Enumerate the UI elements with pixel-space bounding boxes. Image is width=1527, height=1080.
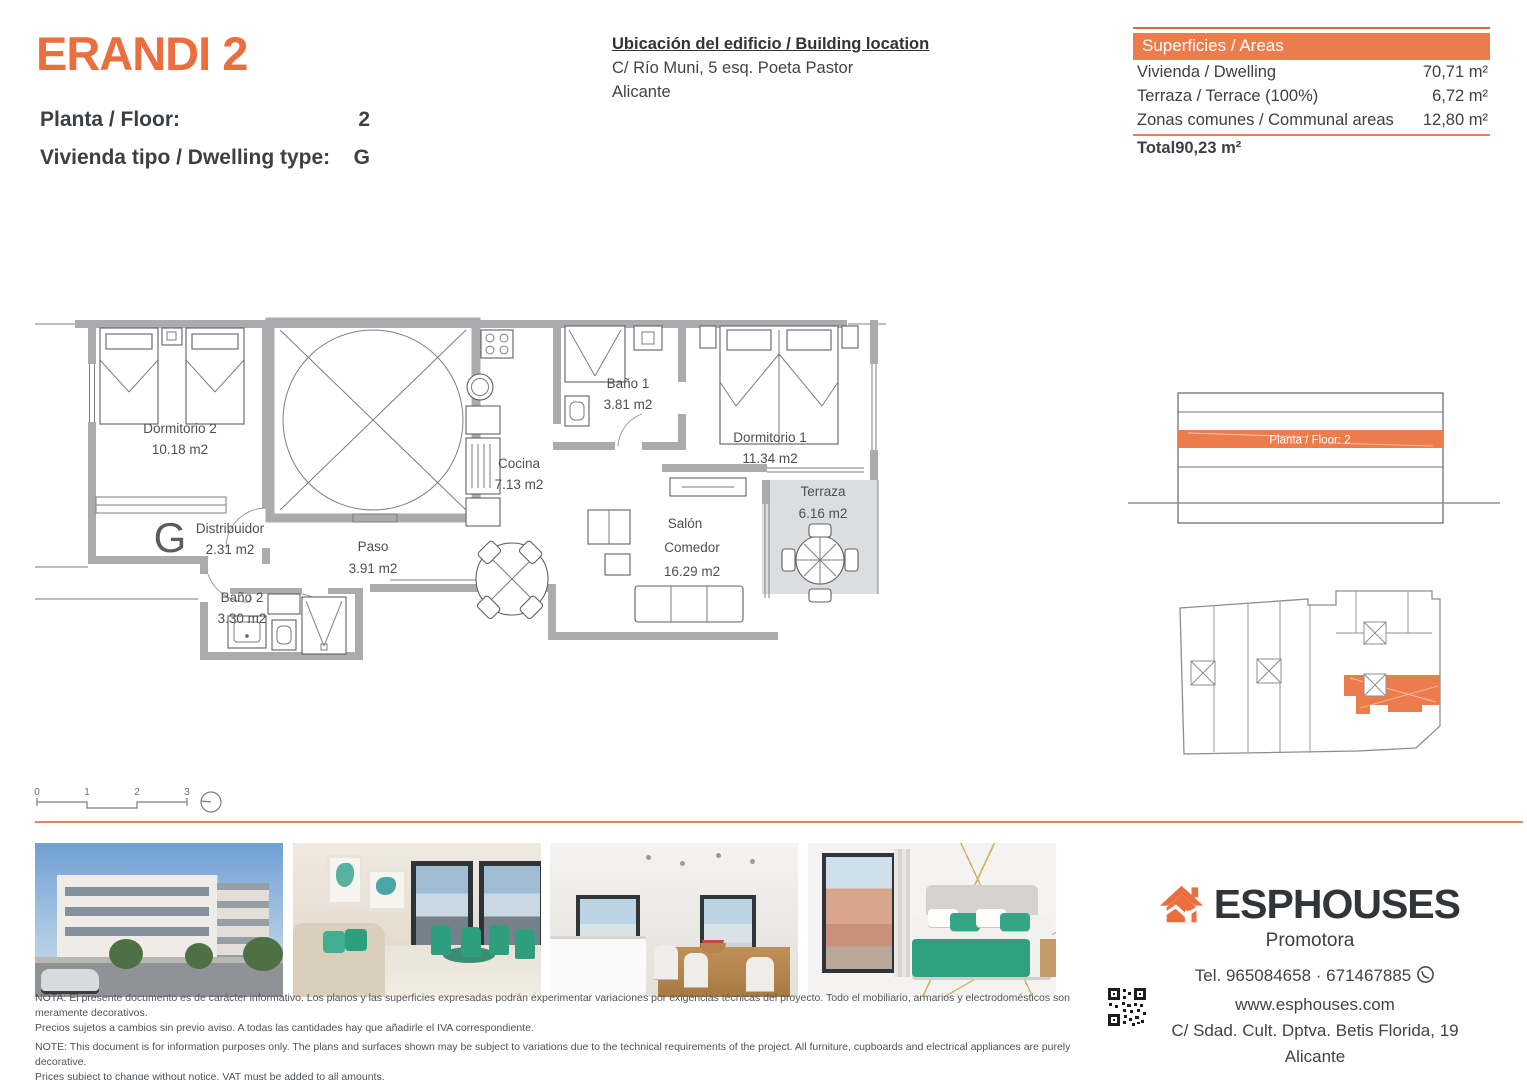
room-area: 3.81 m2 — [604, 397, 653, 412]
total-label: Total — [1137, 139, 1175, 158]
dwelling-type-label: Vivienda tipo / Dwelling type: — [40, 146, 354, 170]
building-location: Ubicación del edificio / Building locati… — [612, 32, 929, 104]
room-area: 11.34 m2 — [742, 451, 797, 466]
room-label: Distribuidor — [196, 521, 265, 536]
table-row: Zonas comunes / Communal areas 12,80 m² — [1133, 108, 1490, 132]
dwelling-type-value: G — [354, 146, 370, 170]
room-area: 16.29 m2 — [664, 564, 720, 579]
room-label: Paso — [358, 539, 389, 554]
photo-kitchen-dining — [550, 843, 798, 997]
contact-city: Alicante — [1120, 1044, 1510, 1070]
scale-tick: 0 — [34, 787, 40, 798]
whatsapp-icon — [1416, 965, 1435, 992]
room-label: Cocina — [498, 456, 541, 471]
room-area: 6.16 m2 — [799, 506, 848, 521]
document-page: ERANDI 2 Planta / Floor: 2 Vivienda tipo… — [0, 0, 1527, 1080]
room-area: 3.91 m2 — [349, 561, 398, 576]
building-location-city: Alicante — [612, 80, 929, 104]
scale-tick: 1 — [84, 787, 90, 798]
areas-table: Superficies / Areas Vivienda / Dwelling … — [1133, 27, 1490, 158]
total-value: 90,23 m² — [1175, 139, 1241, 158]
room-label: Baño 1 — [607, 376, 650, 391]
table-row: Terraza / Terrace (100%) 6,72 m² — [1133, 84, 1490, 108]
note-line: NOTA: El presente documento es de caráct… — [35, 991, 1110, 1021]
contact-address: C/ Sdad. Cult. Dptva. Betis Florida, 19 — [1120, 1018, 1510, 1044]
floor-row: Planta / Floor: 2 — [40, 108, 370, 132]
building-elevation-diagram: Planta / Floor: 2 — [1128, 385, 1500, 545]
room-label: Dormitorio 1 — [733, 430, 807, 445]
note-line: NOTE: This document is for information p… — [35, 1040, 1110, 1070]
photo-living-room — [293, 843, 541, 997]
floor-plan-drawing: Dormitorio 2 10.18 m2 Distribuidor 2.31 … — [30, 302, 890, 682]
row-label: Zonas comunes / Communal areas — [1137, 111, 1423, 130]
disclaimer-notes: NOTA: El presente documento es de caráct… — [35, 991, 1110, 1080]
row-value: 6,72 m² — [1432, 87, 1488, 106]
room-label: Dormitorio 2 — [143, 421, 217, 436]
brand-name: ESPHOUSES — [1214, 881, 1460, 928]
building-location-address: C/ Río Muni, 5 esq. Poeta Pastor — [612, 56, 929, 80]
brand-subtitle: Promotora — [1160, 930, 1460, 952]
note-line: Prices subject to change without notice.… — [35, 1070, 1110, 1080]
row-label: Terraza / Terrace (100%) — [1137, 87, 1432, 106]
room-area: 10.18 m2 — [152, 442, 208, 457]
row-label: Vivienda / Dwelling — [1137, 63, 1423, 82]
room-area: 7.13 m2 — [495, 477, 544, 492]
areas-table-total-row: Total 90,23 m² — [1133, 136, 1490, 158]
row-value: 12,80 m² — [1423, 111, 1488, 130]
photo-building-exterior — [35, 843, 283, 997]
contact-website: www.esphouses.com — [1120, 992, 1510, 1018]
building-location-title: Ubicación del edificio / Building locati… — [612, 32, 929, 56]
areas-table-topline — [1133, 27, 1490, 29]
room-area: 2.31 m2 — [206, 542, 255, 557]
esphouses-house-icon — [1160, 880, 1210, 928]
contact-block: Tel. 965084658 · 671467885 www.esphouses… — [1120, 963, 1510, 1070]
room-label: Terraza — [800, 484, 846, 499]
scale-tick: 2 — [134, 787, 140, 798]
room-label: Salón — [668, 516, 703, 531]
room-area: 3.30 m2 — [218, 611, 267, 626]
floor-label: Planta / Floor: — [40, 108, 358, 132]
areas-table-header: Superficies / Areas — [1133, 33, 1490, 60]
highlighted-floor-label: Planta / Floor: 2 — [1269, 435, 1350, 447]
brand-block: ESPHOUSES Promotora — [1160, 880, 1460, 952]
row-value: 70,71 m² — [1423, 63, 1488, 82]
floor-value: 2 — [358, 108, 370, 132]
contact-phone: Tel. 965084658 · 671467885 — [1120, 963, 1510, 992]
room-label: Comedor — [664, 540, 720, 555]
photo-bedroom — [808, 843, 1056, 997]
room-label: Baño 2 — [221, 590, 264, 605]
dwelling-type-letter: G — [154, 514, 187, 561]
table-row: Vivienda / Dwelling 70,71 m² — [1133, 60, 1490, 84]
note-line: Precios sujetos a cambios sin previo avi… — [35, 1021, 1110, 1036]
project-title: ERANDI 2 — [36, 26, 247, 81]
scale-tick: 3 — [184, 787, 190, 798]
dwelling-type-row: Vivienda tipo / Dwelling type: G — [40, 146, 370, 170]
site-plan-diagram — [1160, 578, 1520, 778]
divider-line — [35, 821, 1523, 823]
scale-bar: 0 1 2 3 — [33, 785, 233, 817]
